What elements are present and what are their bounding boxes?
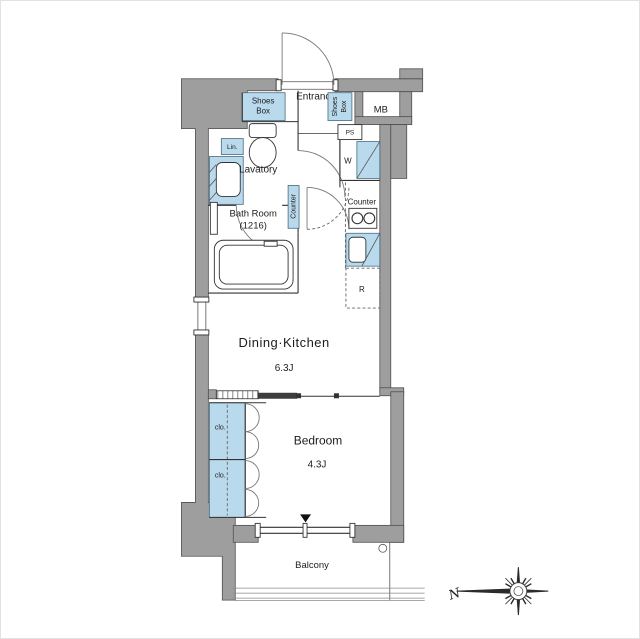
- partition-hatched-strip: [216, 391, 258, 399]
- shoes-box-right-label-1: Shoes: [332, 96, 339, 116]
- balcony-area: Balcony: [232, 542, 424, 600]
- bathtub-faucet: [264, 241, 277, 246]
- shoes-box-left-label-2: Box: [256, 107, 270, 116]
- wall-top-right-block: [400, 69, 423, 79]
- window-direction-marker: [300, 514, 311, 522]
- dining-kitchen-area: Dining·Kitchen 6.3J: [194, 297, 330, 374]
- wall-right-upper: [380, 125, 391, 392]
- bedroom-label: Bedroom: [294, 434, 343, 448]
- wall-top-right: [335, 79, 423, 92]
- compass-hub-inner: [514, 587, 523, 596]
- left-window-cap-bottom: [194, 330, 209, 335]
- sliding-door-stop-1: [296, 393, 301, 398]
- bedroom-size-label: 4.3J: [308, 460, 327, 471]
- floorplan-canvas: Entrance Shoes Box Shoes Box MB PS W Li: [0, 0, 640, 639]
- basin-bowl: [216, 162, 240, 196]
- pipe-space-label: PS: [346, 130, 355, 137]
- closet-door-arc-1: [245, 404, 259, 432]
- shoes-box-left-label-1: Shoes: [252, 97, 275, 106]
- toilet-bowl: [249, 138, 276, 168]
- wall-right-lower: [391, 392, 404, 543]
- hall-counter-label: Counter: [291, 193, 298, 218]
- bathroom-size-label: (1216): [240, 220, 267, 231]
- bedroom-window-cap-right: [350, 523, 355, 537]
- balcony-drain: [379, 544, 387, 552]
- bathtub-inner: [219, 245, 288, 284]
- wall-mb-bottom: [355, 117, 412, 125]
- wall-bottom-window-left: [233, 525, 258, 542]
- meter-box-label: MB: [374, 105, 388, 116]
- bedroom-window-mullion: [303, 523, 307, 537]
- toilet-tank: [249, 124, 276, 138]
- closet-door-arc-2: [245, 432, 258, 459]
- bathroom-area: Bath Room (1216): [208, 202, 298, 293]
- shoes-box-right-label-2: Box: [341, 100, 348, 113]
- bedroom-window-cap-left: [255, 523, 260, 537]
- bathroom-shelf: [210, 202, 217, 234]
- wall-right-upper-wide: [391, 125, 407, 179]
- sliding-door-stop-2: [334, 393, 339, 398]
- wall-partition-stub: [208, 390, 216, 399]
- floorplan-svg: Entrance Shoes Box Shoes Box MB PS W Li: [1, 1, 639, 638]
- corridor-area: Counter: [288, 140, 349, 294]
- closet-door-arc-3: [245, 461, 259, 489]
- dk-door-dashed-arc: [307, 187, 349, 229]
- bedroom-area: Bedroom 4.3J clo. clo.: [209, 403, 355, 538]
- bathroom-label: Bath Room: [230, 208, 277, 219]
- compass-north-label: N: [446, 586, 463, 604]
- wall-bottom-window-right: [353, 525, 404, 542]
- kitchen-area: Counter R: [345, 182, 379, 308]
- linen-label: Lin.: [227, 144, 238, 151]
- lavatory-label: Lavatory: [239, 164, 277, 175]
- entrance-door-jamb-left: [276, 80, 281, 91]
- dining-kitchen-label: Dining·Kitchen: [239, 335, 330, 350]
- left-window-cap-top: [194, 297, 209, 302]
- closet-lower-label: clo.: [215, 473, 226, 480]
- kitchen-counter-label: Counter: [348, 197, 377, 206]
- dk-door-swing-arc: [307, 187, 349, 229]
- compass: N: [446, 567, 548, 615]
- washer-label: W: [344, 156, 352, 165]
- closet-door-arc-4: [245, 489, 258, 516]
- balcony-label: Balcony: [295, 560, 329, 571]
- partition-area: [216, 391, 379, 399]
- kitchen-sink-bowl: [349, 237, 366, 262]
- closet-upper-label: clo.: [215, 425, 226, 432]
- dining-kitchen-size-label: 6.3J: [275, 363, 294, 374]
- entrance-door-swing-arc: [282, 33, 334, 85]
- refrigerator-label: R: [359, 285, 365, 294]
- partition-solid-wall: [258, 393, 297, 399]
- lavatory-door-swing-arc: [298, 151, 345, 198]
